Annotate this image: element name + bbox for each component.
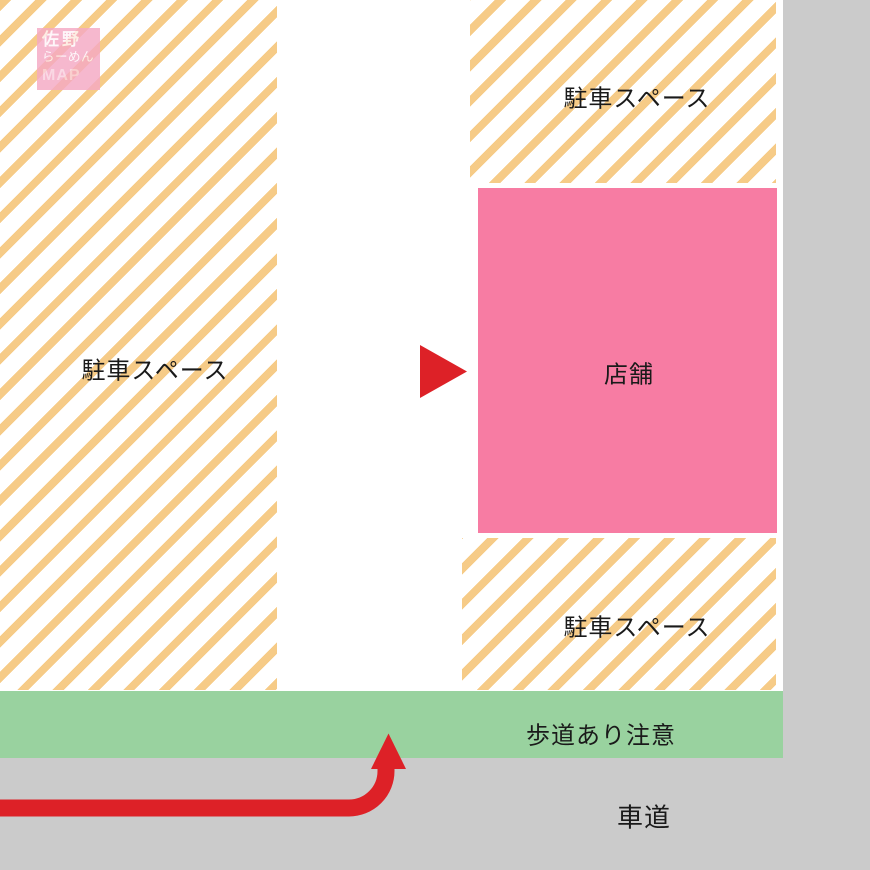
roadway-label: 車道	[617, 798, 671, 835]
parking-left-label: 駐車スペース	[81, 351, 228, 386]
parking-top-right-label: 駐車スペース	[563, 79, 710, 114]
logo-text-line1: 佐野	[42, 31, 100, 48]
shop-label: 店舗	[604, 355, 654, 390]
parking-map: 駐車スペース 駐車スペース 駐車スペース 店舗 歩道あり注意 車道 佐野 らーめ…	[0, 0, 870, 870]
sano-ramen-map-logo: 佐野 らーめん MAP	[37, 28, 100, 90]
sidewalk-notice-label: 歩道あり注意	[526, 716, 676, 751]
parking-bottom-right-label: 駐車スペース	[563, 608, 710, 643]
route-arrow-shaft	[0, 767, 386, 808]
parking-area-left	[0, 0, 277, 690]
logo-text-line2: らーめん	[42, 51, 100, 64]
logo-text-line3: MAP	[42, 68, 100, 84]
